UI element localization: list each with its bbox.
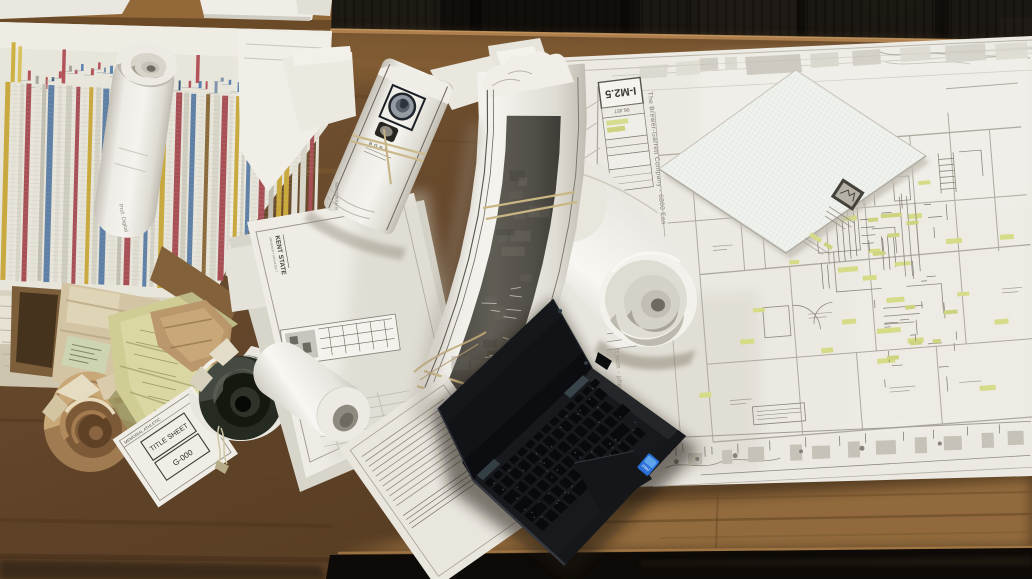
svg-text:MEMORAH B: MEMORAH B [334,182,339,210]
